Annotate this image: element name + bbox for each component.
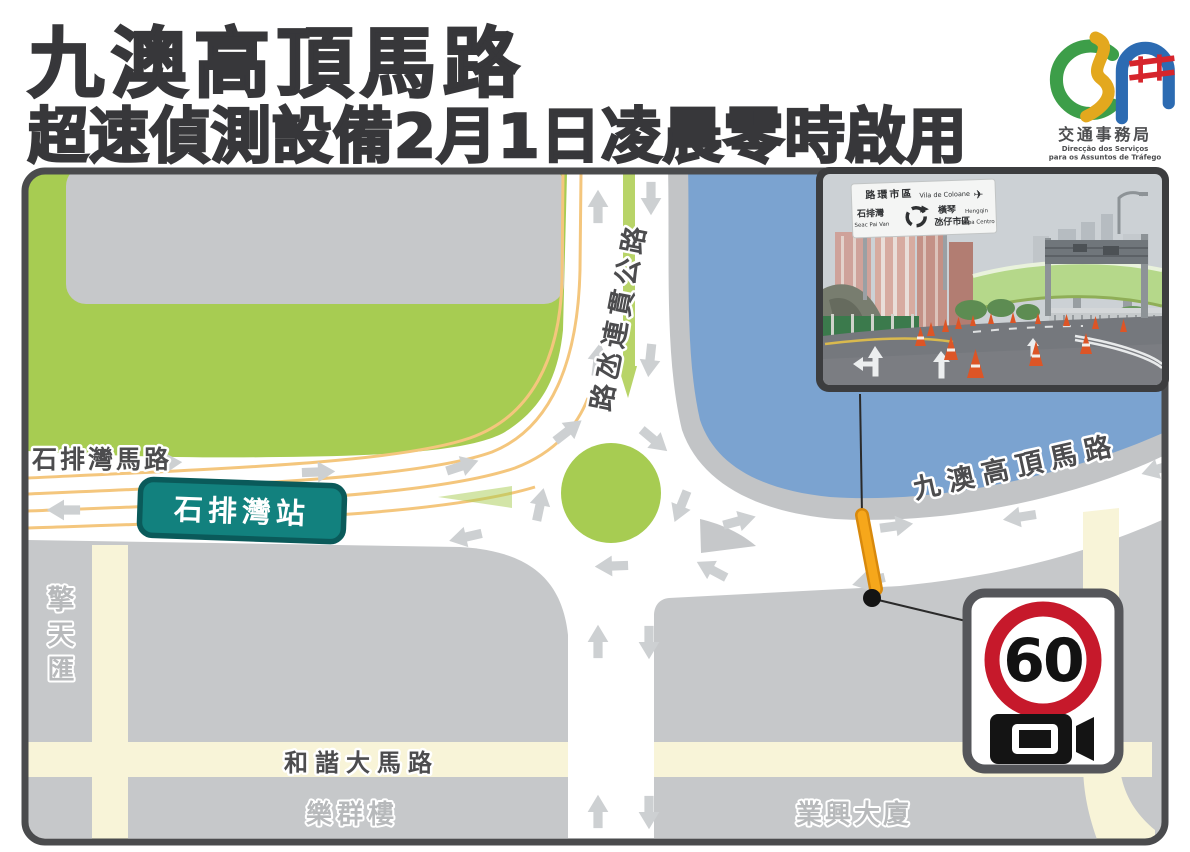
map: 石排灣馬路 路氹連貫公路 九澳高頂馬路 和諧大馬路 擎天匯 樂群樓 業興大廈 石…: [0, 0, 1190, 852]
speed-limit-sign: 60: [967, 593, 1119, 769]
label-lok-kuan: 樂群樓: [306, 799, 399, 830]
camera-point: [863, 589, 881, 607]
roundabout: [561, 443, 661, 543]
central-road: [568, 592, 654, 838]
label-yip-heng: 業興大廈: [796, 799, 912, 830]
station-badge: 石排灣站: [139, 479, 345, 542]
label-harmony-avenue: 和諧大馬路: [284, 749, 439, 777]
label-seac-pai-van-road: 石排灣馬路: [31, 445, 172, 474]
sign-right-pt2: Taipa Centro: [959, 219, 995, 226]
sign-left-pt: Seac Pai Van: [854, 222, 890, 229]
sign-left-zh: 石排灣: [856, 207, 884, 220]
block-top-left: [66, 166, 564, 304]
sign-airplane-icon: ✈: [973, 187, 984, 201]
infographic: 九澳高頂馬路 超速偵測設備2月1日凌晨零時啟用 交通事務局 Direcção d…: [0, 0, 1190, 852]
photo-direction-sign: 路環市區 Vila de Coloane 石排灣 Seac Pai Van 橫琴…: [851, 179, 997, 238]
photo-inset: 路環市區 Vila de Coloane 石排灣 Seac Pai Van 橫琴…: [816, 167, 1169, 392]
sign-right-pt1: Hengqin: [965, 208, 989, 215]
sign-right-zh1: 橫琴: [938, 203, 957, 216]
station-badge-label: 石排灣站: [172, 492, 310, 531]
label-king-tin-wui: 擎天匯: [43, 584, 75, 690]
minor-road-left: [92, 545, 128, 842]
speed-limit-value: 60: [1003, 626, 1083, 696]
